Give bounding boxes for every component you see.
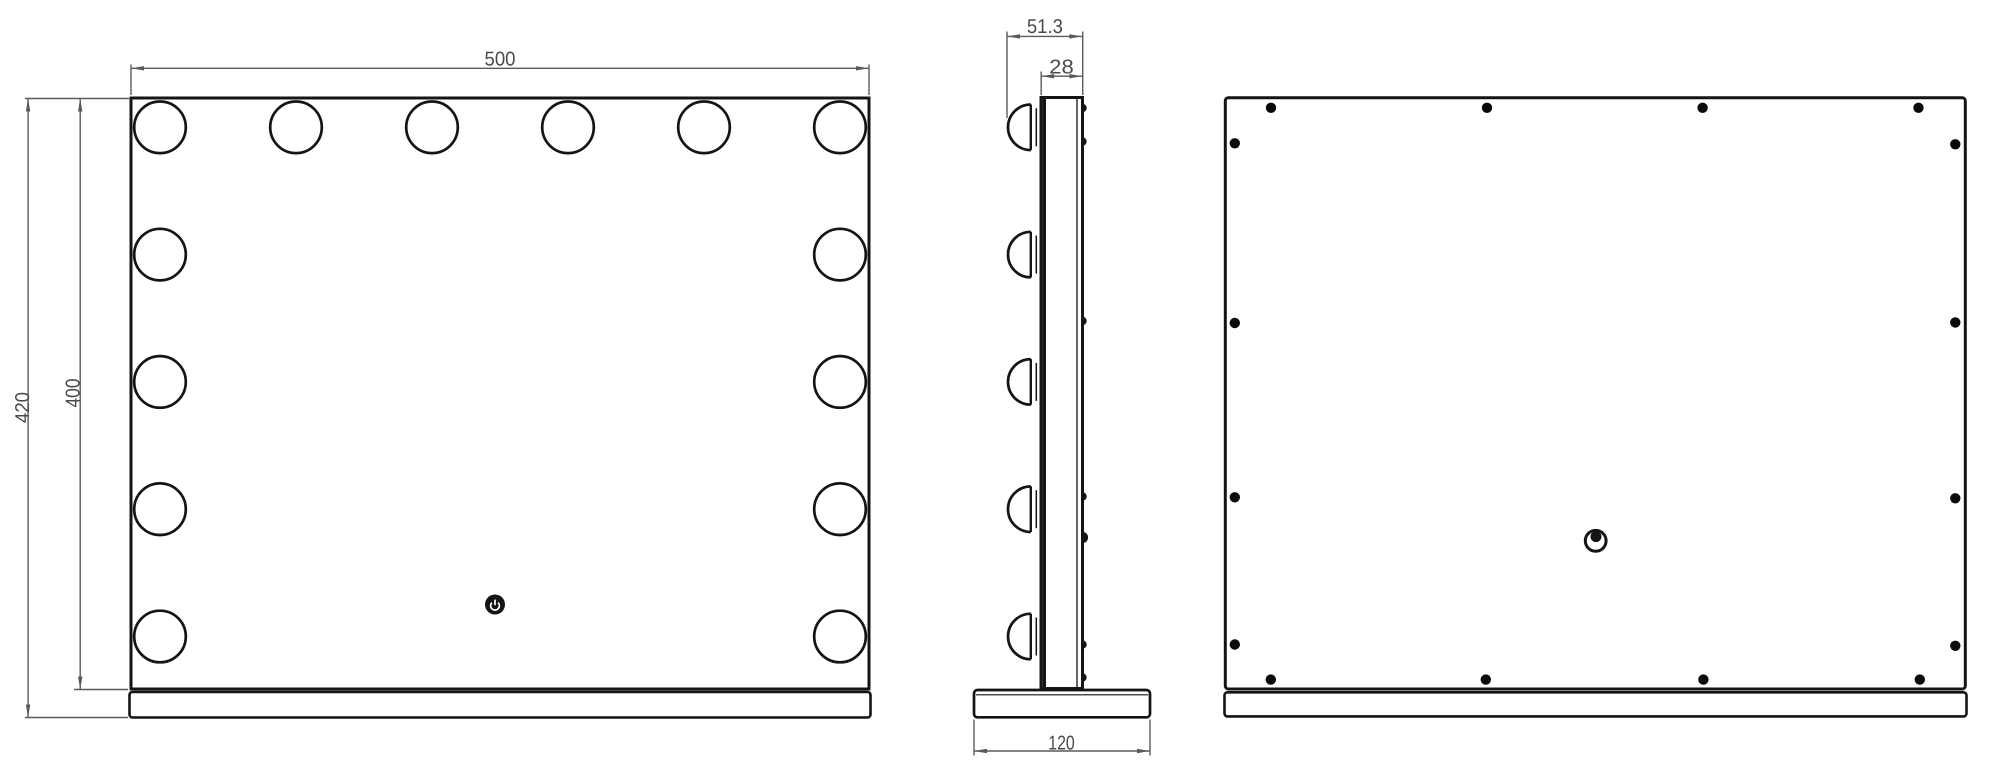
svg-text:28: 28 bbox=[1049, 56, 1074, 78]
svg-text:400: 400 bbox=[62, 379, 84, 408]
svg-text:120: 120 bbox=[1048, 732, 1075, 754]
svg-text:51.3: 51.3 bbox=[1027, 16, 1063, 38]
svg-text:500: 500 bbox=[485, 49, 516, 71]
svg-text:420: 420 bbox=[12, 392, 34, 423]
